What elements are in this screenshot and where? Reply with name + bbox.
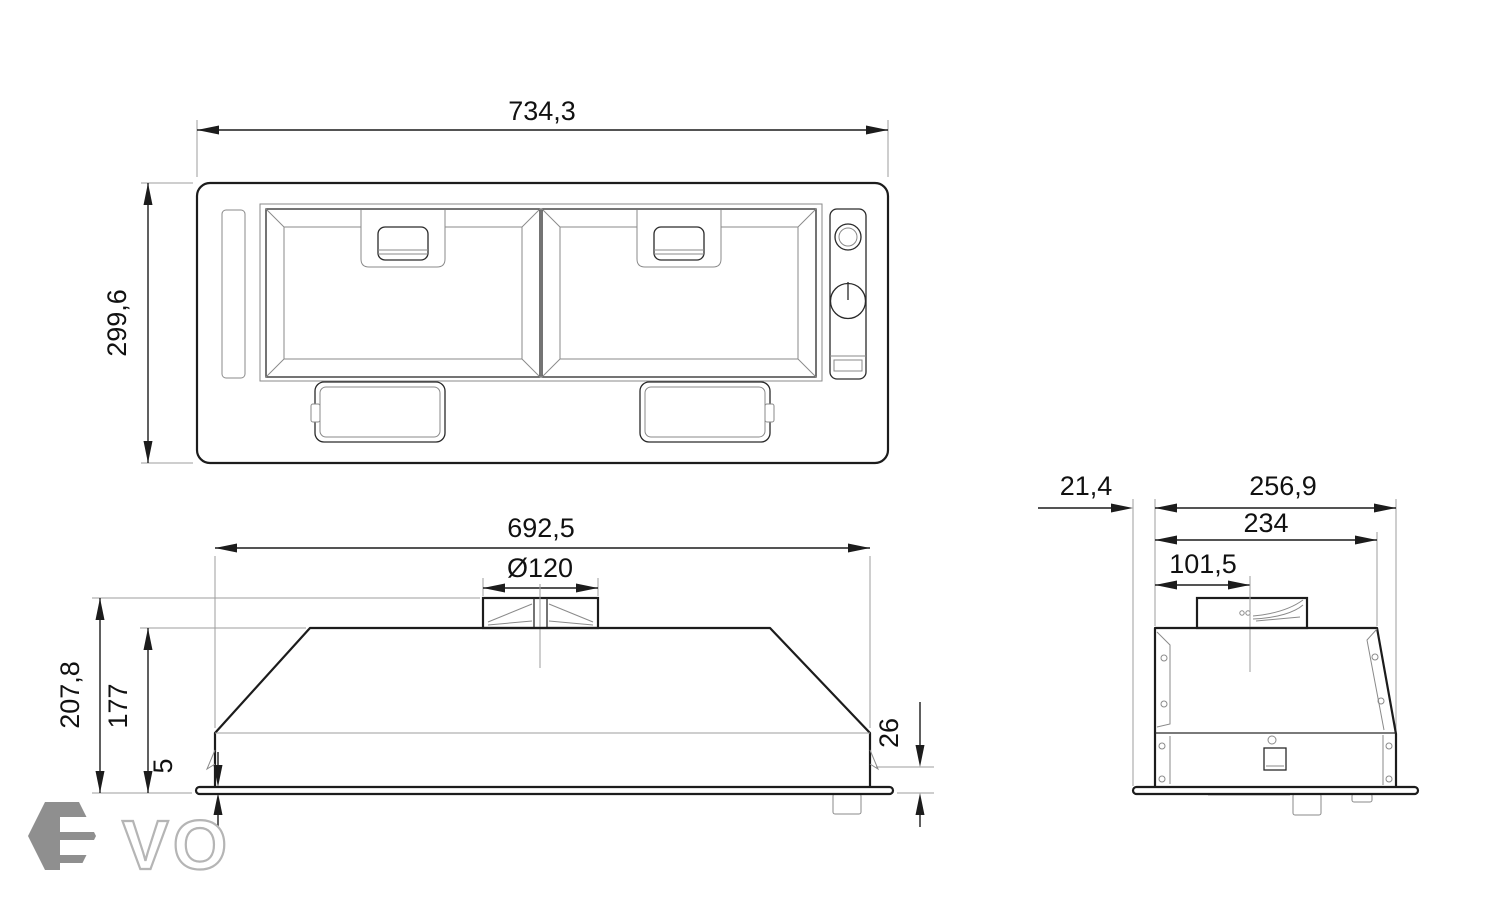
dim-top-width: 734,3 (197, 96, 888, 177)
dim-total-depth: 256,9 (1155, 471, 1396, 513)
drawing-page: 734,3 299,6 (0, 0, 1500, 900)
rivet (1159, 743, 1165, 749)
dim-label-flange-overhang: 21,4 (1060, 471, 1113, 501)
dim-label-front-width: 692,5 (507, 513, 575, 543)
side-view: 21,4 256,9 234 101,5 (1038, 471, 1418, 815)
base-flange-front (196, 787, 893, 794)
foot-front (833, 794, 861, 814)
dim-body-height: 177 (103, 628, 306, 793)
lamp-latch (765, 404, 774, 422)
lamp-left (311, 382, 445, 442)
dim-label-top-depth: 299,6 (102, 289, 132, 357)
dim-label-duct-diameter: Ø120 (507, 553, 573, 583)
cable-gland (1268, 736, 1276, 744)
foot-side (1293, 794, 1321, 815)
dim-top-depth: 299,6 (102, 183, 193, 463)
dim-label-total-depth: 256,9 (1249, 471, 1317, 501)
dim-duct-offset: 101,5 (1155, 549, 1250, 590)
filter-handle-left (378, 227, 428, 260)
base-flange-side (1133, 787, 1418, 794)
foot-side-small (1352, 794, 1372, 802)
rivet (1372, 654, 1378, 660)
dim-label-recess-height: 26 (874, 718, 904, 748)
filter-handle-right (654, 227, 704, 260)
evo-logo-text: VO (122, 806, 231, 884)
dim-label-top-depth-side: 234 (1243, 508, 1288, 538)
dim-top-depth-side: 234 (1155, 508, 1377, 545)
front-view: 692,5 Ø120 207,8 177 (55, 513, 934, 827)
lamp-right (640, 382, 774, 442)
mounting-clip-right (870, 750, 878, 769)
duct-collar-side (1197, 598, 1307, 628)
dim-label-total-height: 207,8 (55, 661, 85, 729)
dim-recess-height: 26 (874, 702, 934, 827)
dim-label-flange-thickness: 5 (148, 758, 178, 773)
hood-body-side (1155, 628, 1396, 787)
dim-label-duct-offset: 101,5 (1169, 549, 1237, 579)
control-panel (830, 209, 866, 379)
rivet (1386, 776, 1392, 782)
rivet (1386, 743, 1392, 749)
rivet (1161, 701, 1167, 707)
rivet (1161, 655, 1167, 661)
lamp-latch (311, 404, 320, 422)
dim-label-top-width: 734,3 (508, 96, 576, 126)
rivet (1159, 776, 1165, 782)
hood-body-front (207, 628, 878, 787)
evo-logo-hexagon (28, 802, 96, 870)
junction-box (1264, 748, 1286, 770)
dim-flange-overhang: 21,4 (1038, 471, 1133, 513)
top-view: 734,3 299,6 (102, 96, 888, 463)
mounting-strip (222, 210, 245, 378)
drawing-canvas: 734,3 299,6 (0, 0, 1500, 900)
evo-logo: VO (28, 802, 231, 884)
dim-label-body-height: 177 (103, 683, 133, 728)
